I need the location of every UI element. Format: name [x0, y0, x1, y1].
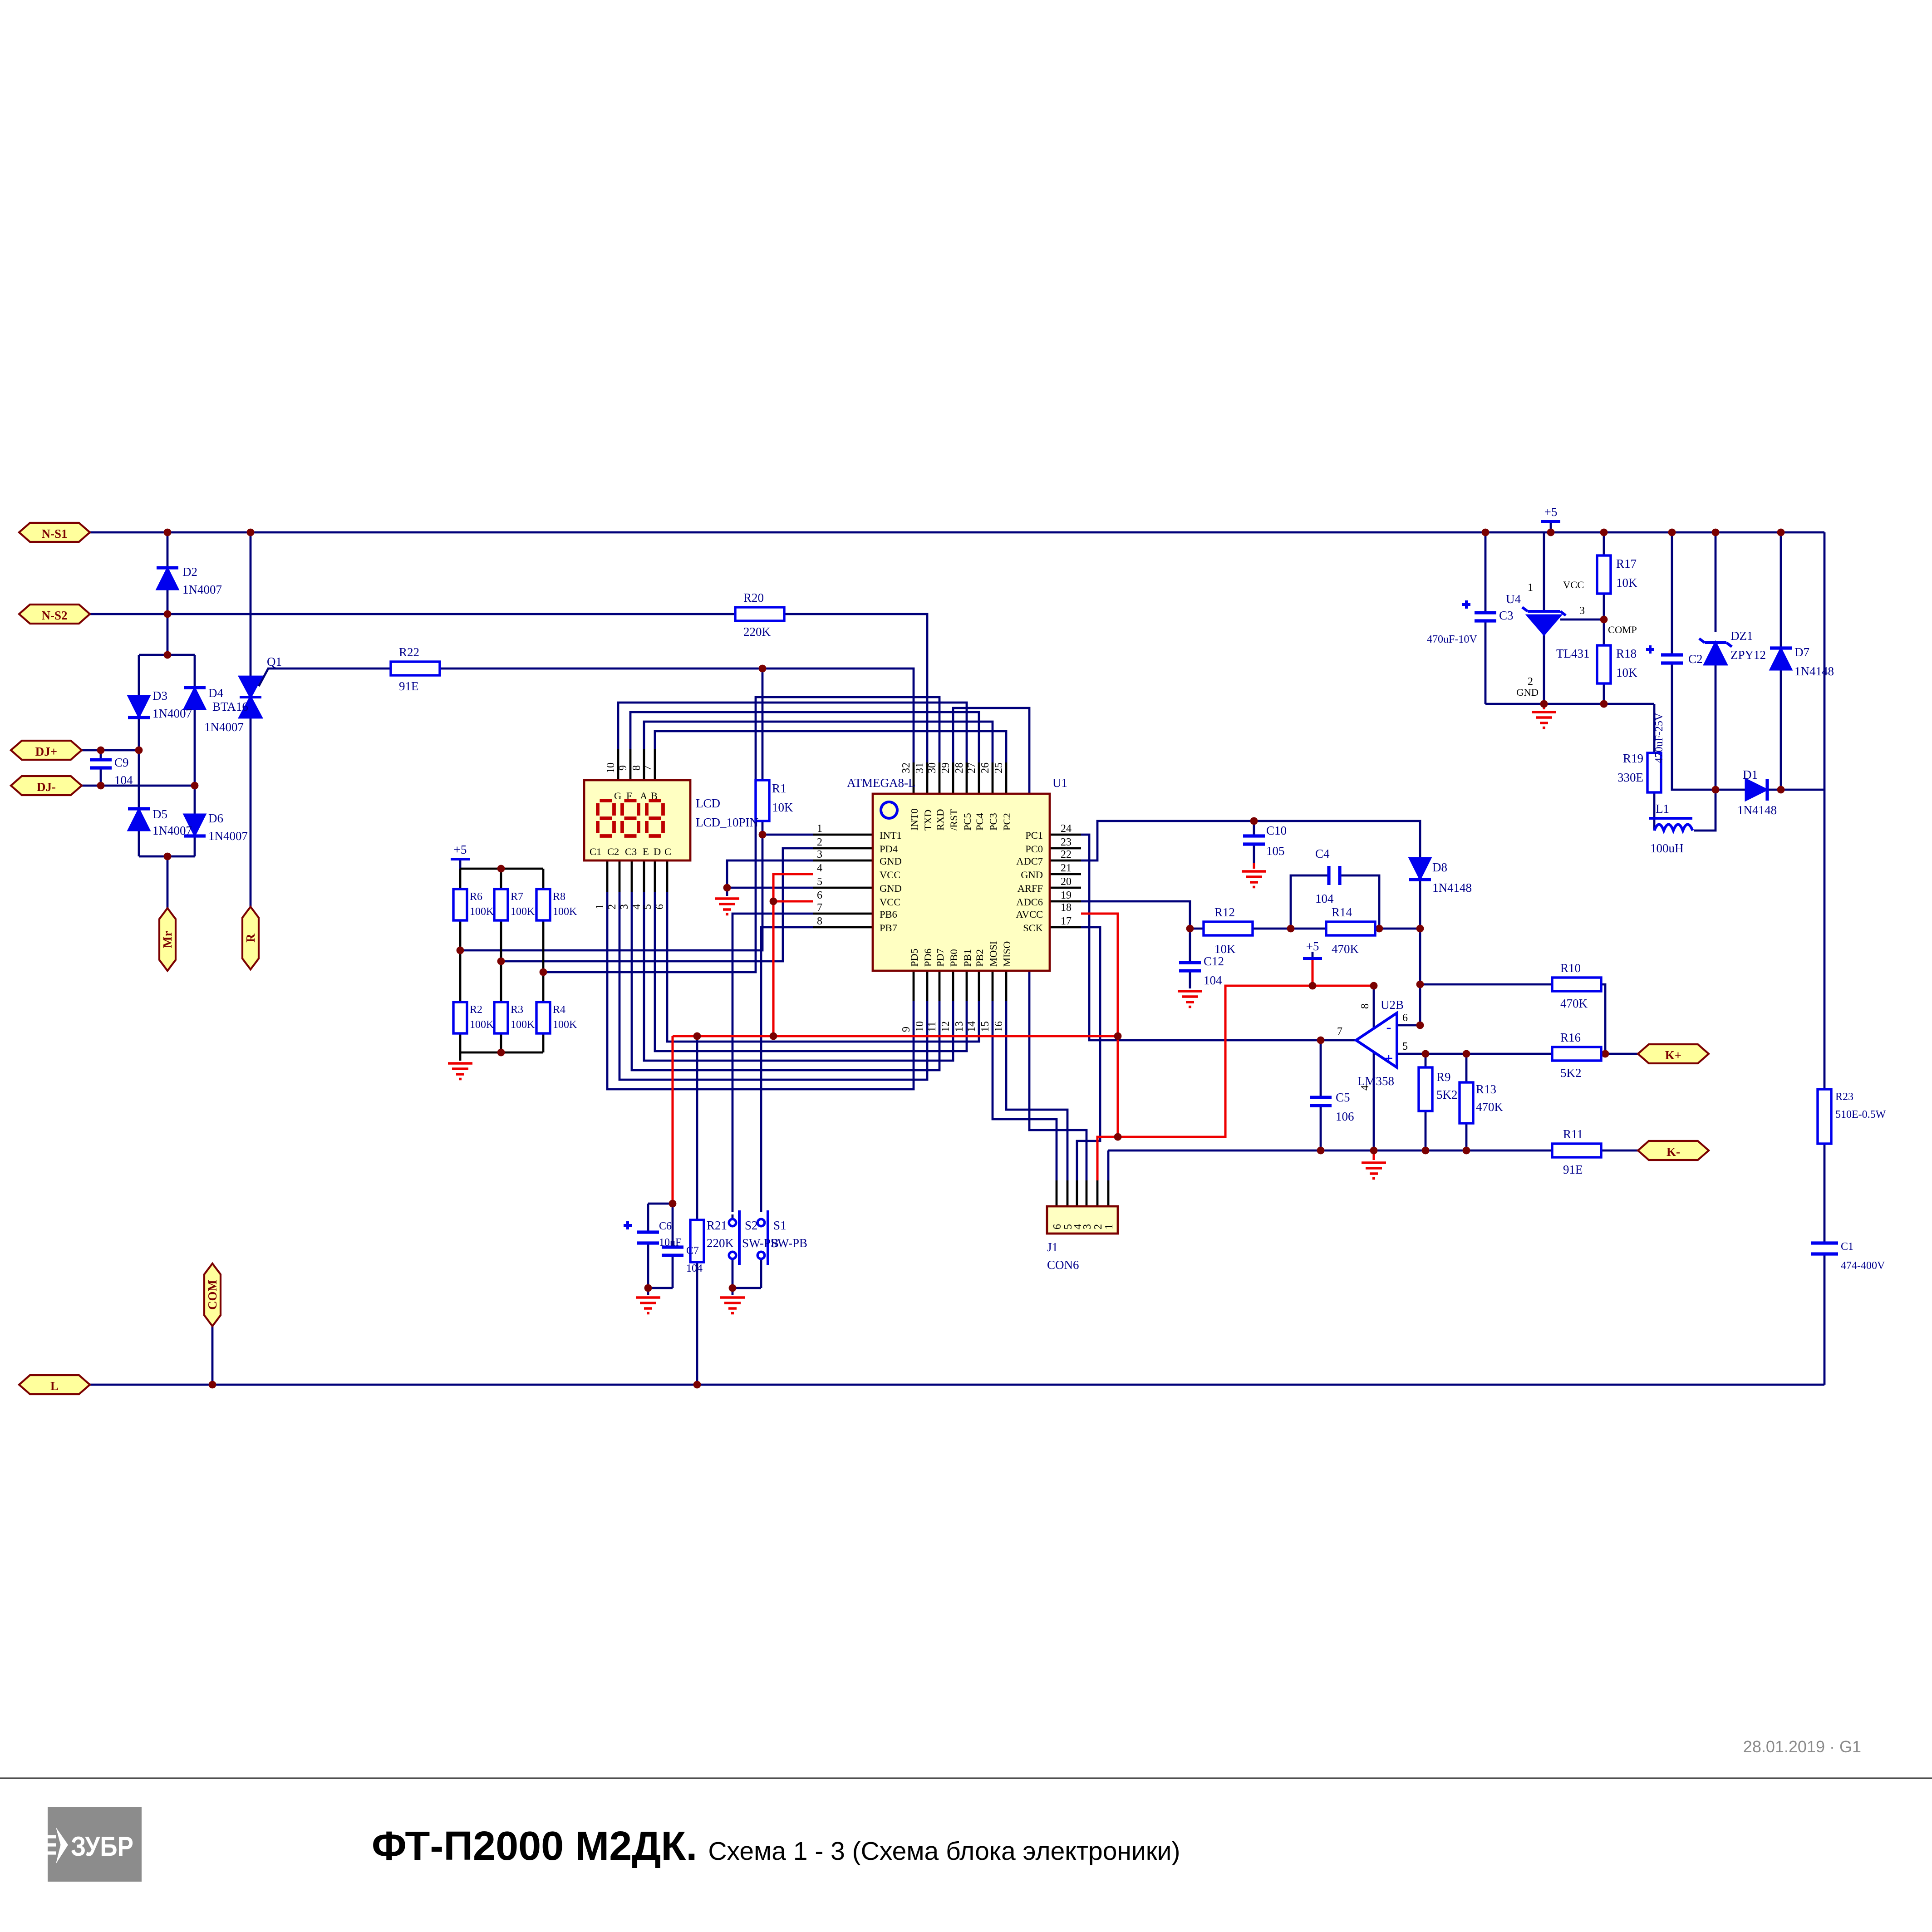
label-d2-val: 1N4007 [182, 583, 222, 596]
label-c9-val: 104 [114, 773, 133, 787]
j1-n4: 2 [1092, 1224, 1104, 1229]
label-d7-ref: D7 [1794, 645, 1809, 659]
port-djp: DJ+ [11, 741, 82, 760]
port-km: K- [1638, 1141, 1709, 1160]
label-r1-val: 10K [772, 801, 793, 814]
lcd-tn3: B [651, 790, 658, 801]
port-km-label: K- [1667, 1145, 1680, 1159]
label-r17-val: 10K [1616, 576, 1637, 590]
diode-d1 [1745, 779, 1767, 801]
lcd-tn1: F [626, 790, 632, 801]
u2b-plus: + [1385, 1051, 1393, 1067]
lcd-tn0: G [614, 790, 621, 801]
label-s1-ref: S1 [773, 1219, 787, 1232]
label-r10-ref: R10 [1560, 961, 1581, 975]
j1-pin-numbers: 6 5 4 3 2 1 [1052, 1224, 1115, 1229]
label-r19-val: 330E [1617, 771, 1643, 784]
label-d7-val: 1N4148 [1794, 664, 1834, 678]
label-r2-val: 100K [470, 1019, 494, 1031]
u1-rn2: ADC7 [1016, 855, 1043, 867]
port-ns2: N-S2 [19, 605, 90, 624]
label-r4-val: 100K [553, 1019, 577, 1031]
label-d6-ref: D6 [208, 811, 223, 825]
label-c12-ref: C12 [1204, 954, 1224, 968]
label-c1-ref: C1 [1841, 1241, 1853, 1253]
label-lcd-part: LCD_10PIN [696, 816, 758, 829]
port-com: COM [204, 1263, 221, 1326]
label-r7-ref: R7 [511, 891, 523, 903]
label-c3-val: 470uF-10V [1427, 634, 1477, 645]
sheet-title-subtitle: Схема 1 - 3 (Схема блока электроники) [708, 1837, 1180, 1866]
tl431-symbol [1522, 607, 1566, 634]
label-r11-ref: R11 [1563, 1127, 1583, 1141]
label-c9-ref: C9 [114, 756, 129, 769]
u1-tnum6: 26 [979, 762, 991, 773]
label-r20-ref: R20 [743, 591, 764, 605]
label-dz1-ref: DZ1 [1730, 629, 1753, 643]
lcd-bn2: C3 [625, 846, 637, 857]
port-ns1-label: N-S1 [41, 527, 67, 541]
label-u4-p2: 2 [1528, 676, 1533, 688]
port-l-label: L [50, 1379, 59, 1393]
u1-lnum7: 8 [817, 915, 822, 927]
j1-body [1047, 1206, 1118, 1234]
label-l1-ref: L1 [1656, 802, 1669, 816]
u1-bnum7: 16 [993, 1021, 1005, 1032]
plus5-top-label: +5 [1544, 505, 1558, 519]
label-d1-val: 1N4148 [1737, 803, 1777, 817]
u1-lnum2: 3 [817, 849, 822, 860]
port-djm: DJ- [11, 776, 82, 795]
label-q1-val: BTA16 [212, 700, 248, 713]
wires-plus5-red [673, 704, 1544, 1204]
label-c10-ref: C10 [1266, 824, 1287, 837]
u1-ln3: VCC [880, 869, 900, 880]
u1-tn4: PC5 [962, 813, 973, 831]
label-r4-ref: R4 [553, 1004, 565, 1016]
lcd-bn4: D [654, 846, 661, 857]
u1-tnum4: 28 [954, 762, 965, 773]
u1-rnum2: 22 [1061, 849, 1072, 860]
label-dz1-val: ZPY12 [1730, 648, 1766, 662]
lcd-tnum3: 7 [642, 765, 654, 771]
zener-dz1 [1699, 639, 1732, 664]
lcd-bnum2: 3 [619, 904, 630, 909]
port-kp: K+ [1638, 1044, 1709, 1063]
u1-ln1: PD4 [880, 843, 898, 855]
label-r13-ref: R13 [1476, 1082, 1496, 1096]
label-c5-val: 106 [1336, 1110, 1354, 1123]
label-d8-ref: D8 [1432, 860, 1447, 874]
label-r14-ref: R14 [1332, 905, 1352, 919]
label-r21-val: 220K [707, 1236, 734, 1250]
label-c6-val: 10uF [659, 1237, 681, 1249]
label-r18-val: 10K [1616, 666, 1637, 679]
lcd-bn5: C [664, 846, 671, 857]
label-lcd-ref: LCD [696, 796, 720, 810]
schematic-sheet: +5 +5 +5 N-S1 N-S2 DJ+ DJ- Mr R COM L K+… [0, 0, 1932, 1932]
lcd-tnum0: 10 [605, 762, 617, 773]
lcd-bn1: C2 [607, 846, 619, 857]
label-d8-val: 1N4148 [1432, 881, 1472, 895]
label-r3-val: 100K [511, 1019, 535, 1031]
label-j1-part: CON6 [1047, 1258, 1079, 1272]
u1-bnum0: 9 [900, 1027, 912, 1032]
u1-rn3: GND [1021, 869, 1043, 880]
u1-ln6: PB6 [880, 909, 897, 920]
label-r16-val: 5K2 [1560, 1066, 1582, 1080]
port-ns1: N-S1 [19, 523, 90, 542]
port-djp-label: DJ+ [35, 745, 57, 758]
u1-tnum0: 32 [900, 762, 912, 773]
diode-d2 [157, 568, 178, 590]
u1-rnum1: 23 [1061, 836, 1072, 848]
label-r17-ref: R17 [1616, 557, 1637, 570]
u1-tnum1: 31 [914, 762, 926, 773]
label-r9-val: 5K2 [1436, 1088, 1458, 1101]
label-d3-ref: D3 [152, 689, 167, 703]
u1-tn5: PC4 [974, 813, 985, 831]
diode-d3 [128, 696, 150, 718]
u2b-p4: 4 [1359, 1085, 1371, 1091]
label-c5-ref: C5 [1336, 1091, 1350, 1104]
j1-n5: 1 [1103, 1224, 1115, 1229]
plus5-opamp-label: +5 [1306, 939, 1319, 953]
u1-ln2: GND [880, 855, 902, 867]
u1-bn0: PD5 [909, 949, 920, 967]
u1-ln5: VCC [880, 896, 900, 908]
sheet-title: ФТ-П2000 М2ДК.Схема 1 - 3 (Схема блока э… [372, 1824, 1180, 1869]
label-r23-ref: R23 [1835, 1091, 1853, 1103]
u1-bn4: PB1 [962, 949, 973, 967]
u1-rn6: AVCC [1016, 909, 1043, 920]
u1-bnum1: 10 [914, 1021, 926, 1032]
label-r11-val: 91E [1563, 1163, 1583, 1176]
u2b-p8: 8 [1359, 1003, 1371, 1009]
lcd-bnum0: 1 [594, 904, 606, 909]
label-q1-ref: Q1 [267, 655, 282, 669]
label-u4-part: TL431 [1556, 647, 1590, 660]
label-u4-ref: U4 [1506, 592, 1521, 606]
u1-tn7: PC2 [1001, 813, 1013, 831]
u1-tnum3: 29 [940, 762, 952, 773]
label-r23-val: 510E-0.5W [1835, 1109, 1886, 1121]
port-l: L [19, 1375, 90, 1394]
lcd-tnum2: 8 [631, 765, 643, 771]
label-r7-val: 100K [511, 906, 535, 918]
label-r6-val: 100K [470, 906, 494, 918]
label-l1-val: 100uH [1650, 841, 1684, 855]
lcd-bn3: E [643, 846, 649, 857]
label-u4-p1: 1 [1528, 582, 1533, 594]
label-r21-ref: R21 [707, 1219, 727, 1232]
label-r8-ref: R8 [553, 891, 565, 903]
label-r12-val: 10K [1214, 942, 1236, 956]
u2b-minus: - [1386, 1019, 1391, 1036]
label-u4-p3: 3 [1579, 605, 1585, 617]
label-j1-ref: J1 [1047, 1240, 1058, 1254]
u1-rnum3: 21 [1061, 862, 1072, 874]
diode-d5 [128, 809, 150, 831]
plus5-network-label: +5 [454, 843, 467, 856]
label-d5-ref: D5 [152, 807, 167, 821]
label-d4-ref: D4 [208, 686, 223, 700]
port-mr: Mr [159, 908, 176, 971]
plus5-top: +5 [1541, 505, 1560, 521]
label-c1-val: 474-400V [1841, 1260, 1885, 1272]
label-c7-ref: C7 [686, 1245, 699, 1257]
port-mr-label: Mr [161, 931, 174, 948]
u1-tnum7: 25 [993, 762, 1005, 773]
port-ns2-label: N-S2 [41, 609, 67, 622]
u1-tn3: /RST [948, 809, 959, 831]
u1-rn5: ADC6 [1016, 896, 1043, 908]
label-r19-ref: R19 [1623, 752, 1643, 765]
inductor-l1 [1649, 818, 1693, 831]
lcd-tn2: A [640, 790, 648, 801]
u1-bn2: PD7 [934, 949, 946, 967]
lcd-bn0: C1 [590, 846, 601, 857]
diode-d7 [1770, 648, 1792, 670]
u2b-p6: 6 [1402, 1012, 1408, 1024]
label-r3-ref: R3 [511, 1004, 523, 1016]
label-u4-vcc: VCC [1563, 579, 1584, 590]
u1-tn0: INT0 [909, 808, 920, 831]
u1-bnum6: 15 [979, 1021, 991, 1032]
label-r16-ref: R16 [1560, 1031, 1581, 1044]
label-r2-ref: R2 [470, 1004, 482, 1016]
u1-ln4: GND [880, 883, 902, 894]
diode-d4 [184, 688, 206, 709]
label-r6-ref: R6 [470, 891, 482, 903]
u1-lnum4: 5 [817, 876, 822, 888]
label-r22-val: 91E [399, 679, 419, 693]
u1-bnum2: 11 [926, 1022, 938, 1032]
u1-lnum5: 6 [817, 890, 822, 901]
u1-bn1: PD6 [922, 949, 934, 967]
lcd-tnum1: 9 [617, 765, 629, 771]
port-com-label: COM [206, 1280, 219, 1310]
u1-lnum6: 7 [817, 902, 822, 914]
brand-logo: ЗУБР [45, 1807, 142, 1882]
label-r12-ref: R12 [1214, 905, 1235, 919]
u1-rn4: ARFF [1018, 883, 1043, 894]
label-c10-val: 105 [1266, 844, 1285, 858]
u1-rnum7: 17 [1061, 915, 1072, 927]
sheet-title-model: ФТ-П2000 М2ДК. [372, 1824, 697, 1869]
label-u1-part: ATMEGA8-L [847, 776, 915, 790]
label-c12-val: 104 [1204, 973, 1222, 987]
u1-bn6: MOSI [988, 941, 999, 967]
u1-bnum5: 14 [966, 1021, 978, 1032]
port-kp-label: K+ [1665, 1048, 1681, 1062]
label-d2-ref: D2 [182, 565, 197, 579]
port-r-label: R [244, 934, 257, 943]
u2b-p5: 5 [1402, 1041, 1408, 1052]
j1-n3: 3 [1082, 1224, 1093, 1229]
label-d4-val: 1N4007 [204, 720, 244, 734]
u1-rnum5: 19 [1061, 890, 1072, 901]
u1-bnum3: 12 [940, 1021, 952, 1032]
label-d3-val: 1N4007 [152, 707, 192, 720]
label-r22-ref: R22 [399, 645, 419, 659]
port-djm-label: DJ- [37, 780, 56, 794]
label-d6-val: 1N4007 [208, 829, 248, 843]
lcd-bnum1: 2 [606, 904, 618, 909]
u1-bn7: MISO [1001, 941, 1013, 967]
label-c2-ref: C2 [1688, 652, 1703, 666]
plus5-network: +5 [451, 843, 470, 859]
u1-lnum1: 2 [817, 836, 822, 848]
diode-d8 [1409, 858, 1431, 880]
label-u4-comp: COMP [1608, 624, 1637, 635]
label-s2-ref: S2 [745, 1219, 758, 1232]
j1-n0: 6 [1052, 1224, 1063, 1229]
label-c6-ref: C6 [659, 1220, 672, 1232]
label-r14-val: 470K [1332, 942, 1359, 956]
u2b-p7: 7 [1337, 1026, 1342, 1037]
lcd-bnum3: 4 [631, 904, 643, 909]
u1-rn7: SCK [1023, 922, 1043, 934]
u1-tn2: RXD [934, 809, 946, 831]
label-c2-val: 470uF-25V [1653, 713, 1665, 763]
u1-rnum0: 24 [1061, 823, 1072, 835]
label-d1-ref: D1 [1743, 768, 1758, 782]
brand-logo-text: ЗУБР [71, 1831, 133, 1862]
label-u2b-ref: U2B [1381, 998, 1404, 1012]
label-r20-val: 220K [743, 625, 771, 639]
u1-lnum0: 1 [817, 823, 822, 835]
label-d5-val: 1N4007 [152, 824, 192, 837]
label-u1-ref: U1 [1052, 776, 1067, 790]
u1-rn1: PC0 [1025, 843, 1043, 855]
label-r8-val: 100K [553, 906, 577, 918]
sheet-date: 28.01.2019 · G1 [1743, 1737, 1861, 1756]
u1-lnum3: 4 [817, 862, 822, 874]
label-r13-val: 470K [1476, 1100, 1504, 1114]
u1-tnum2: 30 [926, 762, 938, 773]
port-r: R [242, 907, 259, 969]
u1-tn6: PC3 [988, 813, 999, 831]
label-u4-gnd: GND [1516, 687, 1539, 698]
u1-tnum5: 27 [966, 762, 978, 773]
lcd-bnum5: 6 [654, 904, 666, 909]
u1-bn5: PB2 [974, 949, 985, 967]
label-c4-val: 104 [1315, 892, 1334, 905]
u1-rnum4: 20 [1061, 876, 1072, 888]
label-r1-ref: R1 [772, 782, 787, 795]
label-c7-val: 104 [686, 1263, 703, 1274]
label-r18-ref: R18 [1616, 647, 1637, 660]
u1-ln0: INT1 [880, 830, 902, 841]
u1-tn1: TXD [922, 810, 934, 831]
u1-rn0: PC1 [1025, 830, 1043, 841]
u1-bn3: PB0 [948, 949, 959, 967]
label-r10-val: 470K [1560, 997, 1588, 1010]
label-c3-ref: C3 [1499, 609, 1514, 622]
u1-ln7: PB7 [880, 922, 897, 934]
label-c4-ref: C4 [1315, 847, 1330, 860]
u1-rnum6: 18 [1061, 902, 1072, 914]
lcd-bnum4: 5 [642, 904, 654, 909]
u1-bnum4: 13 [954, 1021, 965, 1032]
label-r9-ref: R9 [1436, 1070, 1451, 1084]
label-s1-val: SW-PB [771, 1236, 807, 1250]
footer: 28.01.2019 · G1 ЗУБР ФТ-П2000 М2ДК.Схема… [0, 1737, 1932, 1882]
